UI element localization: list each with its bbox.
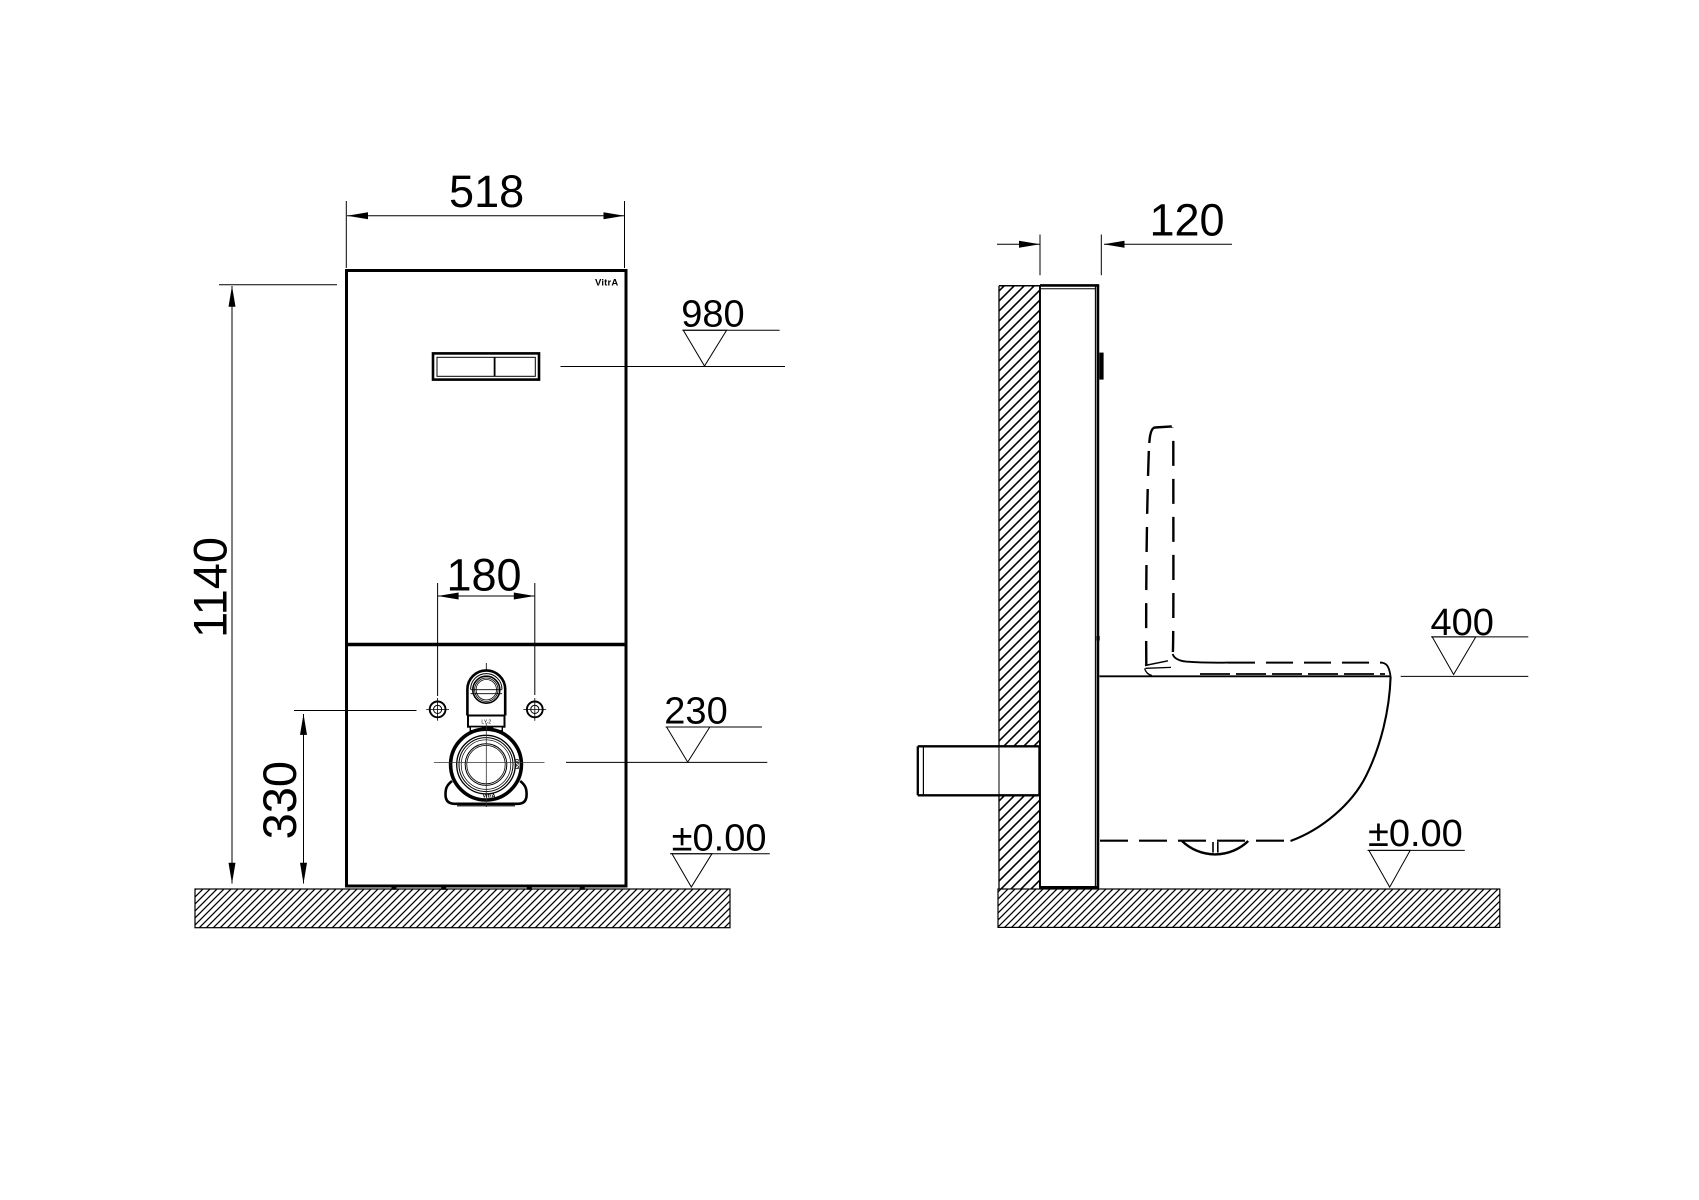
svg-text:VitrA: VitrA (595, 278, 619, 289)
svg-text:±0.00: ±0.00 (1368, 813, 1463, 855)
svg-text:Ø90: Ø90 (515, 759, 521, 769)
svg-text:180: 180 (446, 549, 521, 600)
svg-text:120: 120 (1149, 194, 1224, 245)
svg-text:230: 230 (664, 691, 727, 733)
svg-text:980: 980 (681, 293, 744, 335)
svg-text:1140: 1140 (184, 537, 237, 638)
svg-text:518: 518 (449, 166, 524, 217)
svg-text:400: 400 (1430, 602, 1493, 644)
svg-text:VitrA: VitrA (482, 794, 495, 800)
svg-text:330: 330 (253, 761, 306, 839)
